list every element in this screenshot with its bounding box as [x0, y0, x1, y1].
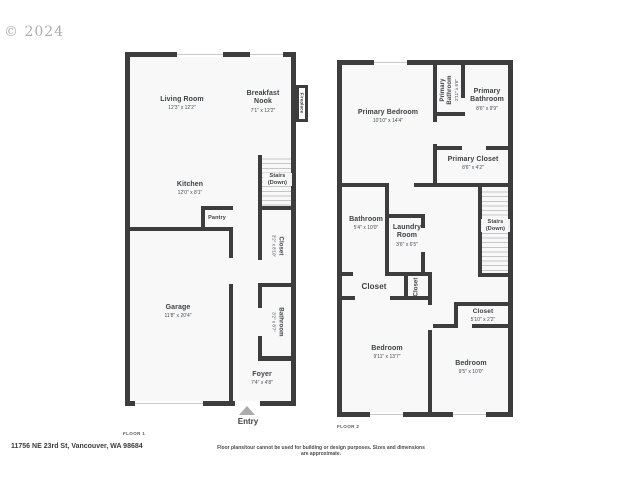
window-marker: [250, 52, 283, 57]
room-dims: 9'5" x 10'0": [431, 369, 511, 376]
room-dims: 10'10" x 14'4": [348, 118, 428, 125]
room-name: Bedroom: [347, 345, 427, 353]
copyright-watermark: © 2024: [4, 24, 64, 40]
room-dims: 5'4" x 10'0": [336, 225, 396, 232]
wall: [428, 272, 432, 305]
room-name: Primary Bedroom: [348, 109, 428, 117]
room-name: Kitchen: [150, 181, 230, 189]
pantry-label: Pantry: [203, 215, 231, 222]
wall: [437, 112, 465, 116]
room-name: Primary: [458, 88, 516, 96]
garage-label: Garage 11'8" x 20'4": [138, 304, 218, 320]
window-marker: [453, 412, 486, 417]
wall: [128, 227, 233, 231]
room-name-line2: (Down): [264, 180, 291, 187]
hall-closet-label: Closet: [352, 282, 396, 292]
wall: [229, 231, 233, 258]
bedroom2-closet-label: Closet 5'10" x 2'2": [458, 308, 508, 323]
room-dims: 12'0" x 8'1": [150, 190, 230, 197]
wall: [390, 296, 430, 300]
breakfast-nook-label: Breakfast Nook 7'1" x 12'2": [233, 90, 293, 114]
floor1-closet-label: Closet 3'2" x 8'10": [270, 235, 283, 257]
wall: [342, 296, 355, 300]
room-name: Closet: [352, 282, 396, 292]
floor1-stairs-label: Stairs (Down): [263, 173, 292, 186]
wall: [262, 283, 291, 287]
room-name: Bedroom: [431, 360, 511, 368]
entry-label: Entry: [230, 417, 266, 426]
garage-door-marker: [135, 401, 203, 406]
bedroom2-label: Bedroom 9'5" x 10'0": [431, 360, 511, 376]
floor1-caption: FLOOR 1: [123, 431, 145, 436]
wall: [437, 146, 462, 150]
entry-arrow-icon: [239, 406, 255, 415]
fireplace-label: Fireplace: [299, 93, 304, 114]
window-marker: [370, 412, 403, 417]
room-name: Living Room: [142, 96, 222, 104]
floor2-stairs-label: Stairs (Down): [481, 219, 510, 232]
room-name-line2: Bathroom: [447, 75, 454, 104]
bedroom1-label: Bedroom 9'11" x 13'7": [347, 345, 427, 361]
room-name: Stairs: [482, 219, 509, 226]
room-name: Closet: [413, 278, 420, 297]
floor2-bathroom-label: Bathroom 5'4" x 10'0": [336, 216, 396, 232]
room-name: Primary Closet: [433, 156, 513, 164]
room-name: Closet: [276, 237, 283, 256]
laundry-room-label: Laundry Room 3'6" x 6'5": [389, 224, 425, 248]
wall: [472, 324, 508, 328]
wall: [262, 206, 291, 210]
disclaimer-text: Floor plans/tour cannot be used for buil…: [215, 445, 427, 457]
room-name: Bathroom: [276, 307, 283, 336]
room-name: Bathroom: [336, 216, 396, 224]
wall: [342, 183, 389, 187]
room-dims: 3'6" x 6'5": [389, 242, 425, 249]
primary-closet-label: Primary Closet 8'6" x 4'2": [433, 156, 513, 172]
room-name: Breakfast: [233, 90, 293, 98]
room-dims: 5'10" x 2'2": [458, 317, 508, 324]
wall: [414, 183, 508, 187]
wall: [201, 206, 233, 210]
kitchen-label: Kitchen 12'0" x 8'1": [150, 181, 230, 197]
room-name: Foyer: [236, 371, 288, 379]
room-dims: 11'8" x 20'4": [138, 313, 218, 320]
room-name-line2: Bathroom: [458, 96, 516, 104]
primary-bedroom-label: Primary Bedroom 10'10" x 14'4": [348, 109, 428, 125]
wall: [258, 356, 291, 361]
room-dims: 9'11" x 13'7": [347, 354, 427, 361]
wall: [421, 252, 425, 272]
living-room-label: Living Room 12'3" x 12'2": [142, 96, 222, 112]
wall: [229, 284, 233, 401]
wall: [478, 273, 508, 277]
room-dims: 8'6" x 9'9": [458, 106, 516, 113]
room-name: Primary: [440, 78, 447, 101]
room-dims: 3'2" x 8'7": [270, 312, 276, 332]
room-name: Closet: [458, 308, 508, 316]
room-name-line2: Nook: [233, 98, 293, 106]
floor1-bathroom-label: Bathroom 3'2" x 8'7": [270, 307, 283, 336]
wall: [486, 146, 508, 150]
room-name: Stairs: [264, 173, 291, 180]
floor2-caption: FLOOR 2: [337, 424, 359, 429]
floorplan-page: © 2024 Fireplace Living Room 12'3" x 12'…: [0, 0, 640, 480]
wall: [433, 324, 458, 328]
small-closet-label: Closet: [413, 278, 420, 297]
room-name-line2: (Down): [482, 226, 509, 233]
wall: [342, 272, 353, 276]
foyer-label: Foyer 7'4" x 4'8": [236, 371, 288, 387]
room-dims: 8'6" x 4'2": [433, 165, 513, 172]
room-name-line2: Room: [389, 232, 425, 240]
room-name: Laundry: [389, 224, 425, 232]
room-name: Fireplace: [299, 93, 304, 114]
room-name: Pantry: [203, 215, 231, 222]
room-dims: 12'3" x 12'2": [142, 105, 222, 112]
window-marker: [374, 60, 407, 65]
primary-bathroom-label: Primary Bathroom 8'6" x 9'9": [458, 88, 516, 112]
wall: [454, 302, 508, 306]
window-marker: [177, 52, 223, 57]
room-dims: 7'4" x 4'8": [236, 380, 288, 387]
room-dims: 3'2" x 8'10": [270, 235, 276, 257]
room-dims: 7'1" x 12'2": [233, 108, 293, 115]
room-name: Garage: [138, 304, 218, 312]
property-address: 11756 NE 23rd St, Vancouver, WA 98684: [11, 443, 143, 450]
